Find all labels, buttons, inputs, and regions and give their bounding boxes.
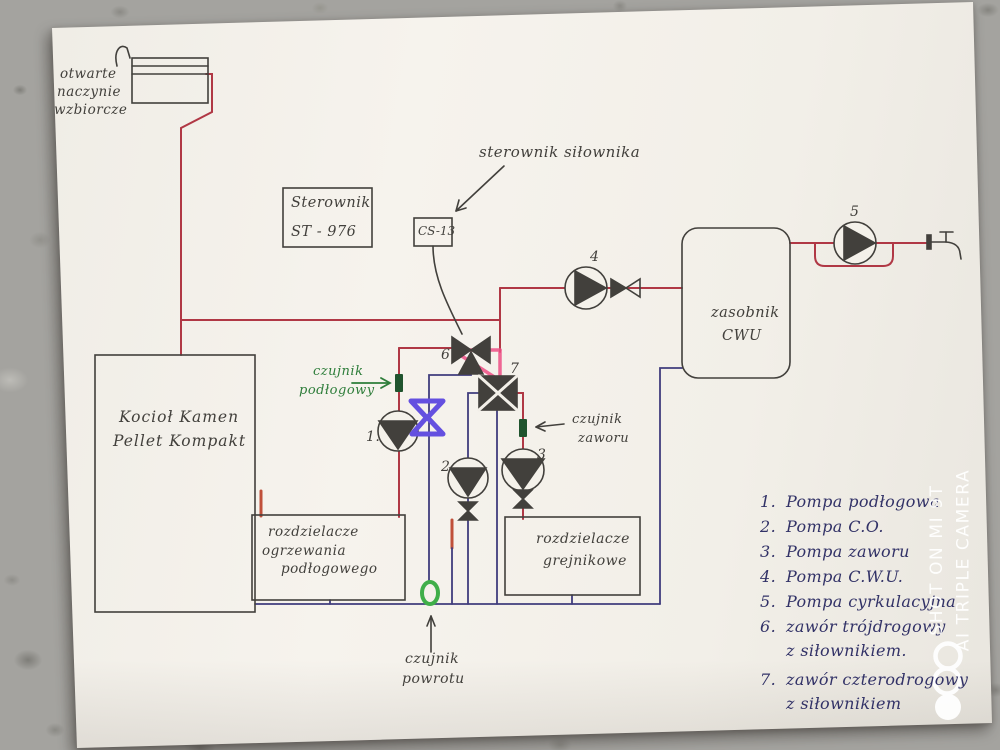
floor-sensor-label-line2: podłogowy [299, 383, 375, 398]
floor-sensor-label-line1: czujnik [313, 364, 363, 379]
floor-manifold-label-line2: ogrzewania [262, 543, 346, 559]
legend-item-text: Pompa zaworu [786, 539, 910, 564]
return-sensor-label-line1: czujnik [405, 651, 459, 667]
pump-5-symbol [834, 222, 876, 264]
boiler-box-outline [95, 355, 255, 612]
dhw-tank-label-line1: zasobnik [711, 305, 780, 321]
return-sensor-arrow [427, 616, 435, 652]
legend-item-number: 6. [760, 614, 778, 639]
photo-of-hand-drawn-heating-schematic: otwarte naczynie wzbiorcze Sterownik ST … [0, 0, 1000, 750]
legend-item-number: 7. [760, 667, 778, 692]
pump-2-symbol [448, 458, 488, 498]
legend-item: 7. zawór czterodrogowy z siłownikiem [760, 667, 992, 716]
floor-manifold-label-line3: podłogowego [281, 561, 378, 577]
floor-sensor-marker [395, 374, 403, 392]
legend-item-text: zawór trójdrogowy [786, 614, 946, 639]
purple-marker-valve [411, 401, 443, 434]
boiler-label-line2: Pellet Kompakt [113, 432, 246, 450]
return-sensor-label-line2: powrotu [402, 671, 465, 687]
expansion-vessel-drawing [116, 46, 208, 103]
controller-model-label: ST - 976 [291, 224, 356, 240]
pump-5-number: 5 [850, 204, 859, 220]
radiator-manifold-label-line1: rozdzielacze [536, 531, 630, 547]
valve-sensor-arrow [536, 422, 564, 431]
dhw-tank-label-line2: CWU [722, 328, 762, 344]
expansion-vessel-label-line1: otwarte [60, 66, 117, 82]
legend-item-number: 4. [760, 564, 778, 589]
expansion-vessel-label-line2: naczynie [57, 84, 121, 100]
watermark-line1: SHOT ON MI 9T [927, 475, 947, 645]
floor-manifold-label-line1: rozdzielacze [268, 524, 359, 540]
pump-3-number: 3 [537, 447, 546, 463]
valve-sensor-label-line2: zaworu [578, 431, 629, 446]
legend-item-text: Pompa C.W.U. [786, 564, 903, 589]
dhw-tank-outline [682, 228, 790, 378]
four-way-valve-symbol [479, 376, 517, 410]
legend-item-number: 2. [760, 514, 778, 539]
three-way-valve-symbol [452, 337, 490, 374]
small-valve-below-pump3 [514, 490, 532, 508]
return-sensor-marker [422, 582, 438, 604]
pump-4-symbol [565, 267, 607, 309]
valve-sensor-label-line1: czujnik [572, 412, 622, 427]
legend-item-text-line2: z siłownikiem [760, 692, 992, 716]
actuator-module-label: CS-13 [418, 224, 455, 238]
small-valve-below-pump2 [459, 502, 477, 520]
expansion-vessel-label-line3: wzbiorcze [54, 102, 127, 118]
pump-1-number: 1. [366, 429, 380, 445]
watermark-line2: AI TRIPLE CAMERA [954, 463, 974, 658]
legend-item-text: zawór czterodrogowy [786, 667, 968, 692]
legend-item-text: Pompa C.O. [786, 514, 884, 539]
pointer-arrow-to-cs13 [456, 166, 504, 211]
boiler-label-line1: Kocioł Kamen [119, 408, 239, 426]
pump-4-number: 4 [590, 249, 599, 265]
valve-7-number: 7 [510, 361, 519, 377]
legend-item-number: 3. [760, 539, 778, 564]
radiator-manifold-label-line2: grejnikowe [543, 553, 627, 569]
controller-name-label: Sterownik [291, 195, 371, 211]
actuator-controller-label: sterownik siłownika [479, 143, 640, 161]
pump-2-number: 2 [441, 459, 450, 475]
supply-pipes [181, 74, 928, 519]
tap-icon [927, 232, 961, 259]
legend-item-text: Pompa podłogowa [786, 489, 940, 514]
valve-6-number: 6 [441, 347, 450, 363]
legend-item-number: 5. [760, 589, 778, 614]
valve-sensor-marker [519, 419, 527, 437]
legend-item-number: 1. [760, 489, 778, 514]
